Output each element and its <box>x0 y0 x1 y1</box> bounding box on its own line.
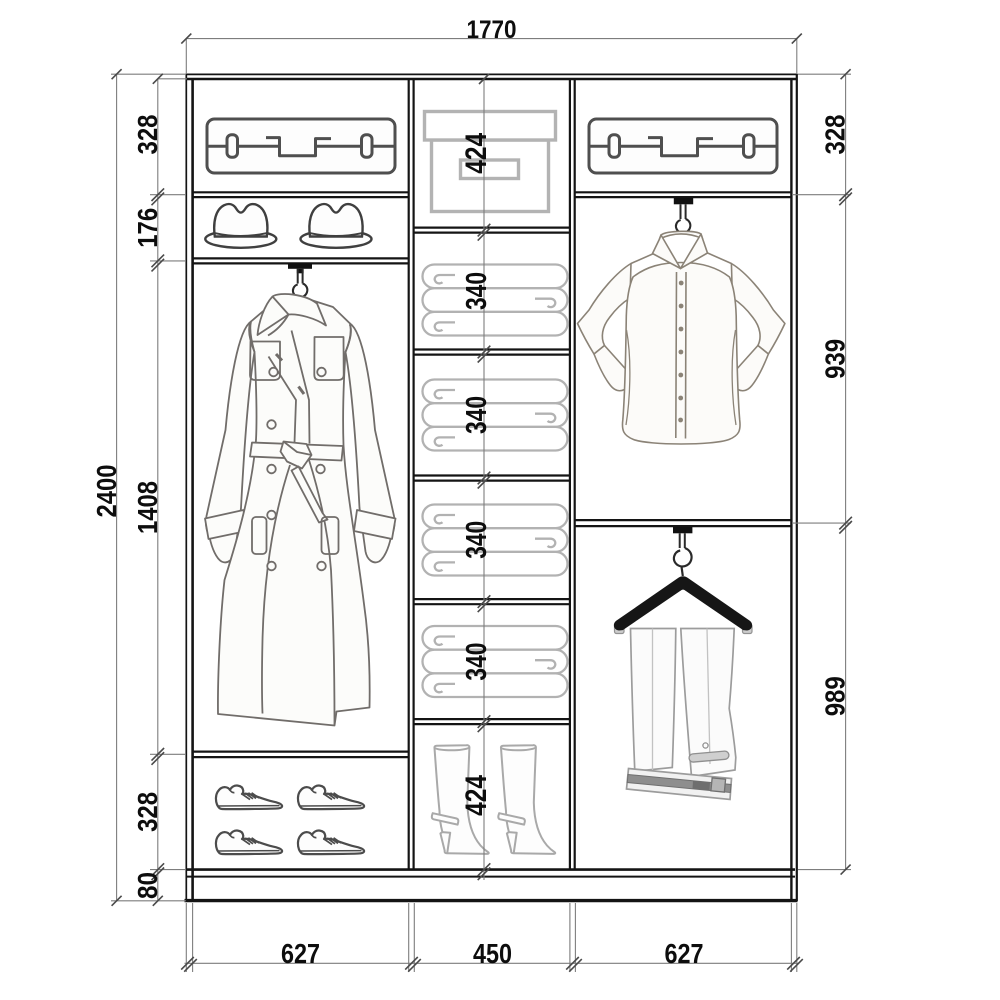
svg-text:1408: 1408 <box>132 481 163 534</box>
svg-text:424: 424 <box>460 132 493 173</box>
svg-text:340: 340 <box>461 396 493 434</box>
svg-text:989: 989 <box>820 676 851 716</box>
svg-text:939: 939 <box>820 339 851 379</box>
svg-text:627: 627 <box>281 938 320 969</box>
svg-text:340: 340 <box>461 272 493 310</box>
svg-text:450: 450 <box>473 938 512 969</box>
svg-text:340: 340 <box>461 521 493 559</box>
svg-text:1770: 1770 <box>467 16 517 44</box>
svg-text:328: 328 <box>820 115 851 155</box>
svg-text:328: 328 <box>132 115 163 155</box>
svg-text:80: 80 <box>132 872 163 899</box>
svg-text:328: 328 <box>132 792 163 832</box>
svg-text:627: 627 <box>665 938 704 969</box>
svg-text:424: 424 <box>460 774 493 815</box>
svg-text:340: 340 <box>461 643 493 681</box>
svg-text:176: 176 <box>132 208 163 248</box>
svg-text:2400: 2400 <box>91 465 122 518</box>
